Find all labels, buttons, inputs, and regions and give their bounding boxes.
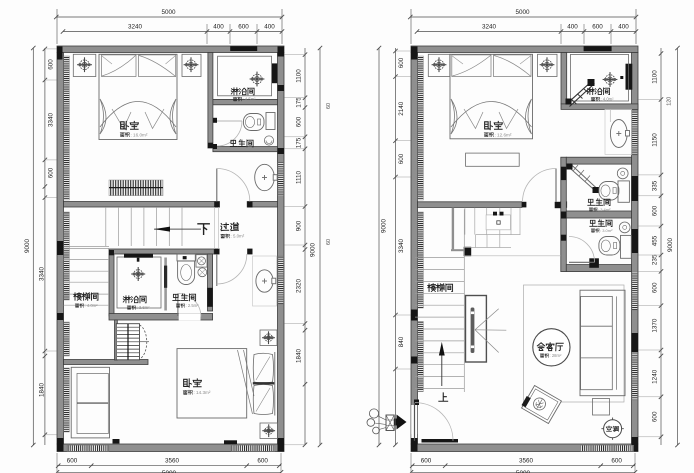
svg-text:175: 175 (296, 97, 303, 108)
svg-text:1110: 1110 (296, 170, 303, 184)
svg-text:235: 235 (652, 254, 659, 265)
svg-text:3340: 3340 (38, 267, 45, 282)
svg-text:600: 600 (652, 282, 659, 293)
svg-text:600: 600 (47, 59, 54, 70)
svg-text:175: 175 (296, 137, 303, 148)
svg-text:600: 600 (611, 458, 622, 465)
svg-text:600: 600 (238, 24, 249, 31)
svg-text:600: 600 (592, 24, 603, 31)
svg-text:5000: 5000 (515, 9, 530, 16)
svg-text:9000: 9000 (381, 219, 388, 234)
svg-text:9000: 9000 (24, 239, 31, 254)
svg-text:2140: 2140 (398, 101, 405, 116)
svg-text:1100: 1100 (652, 70, 659, 84)
svg-text:1370: 1370 (652, 318, 659, 333)
svg-text:: 3.4m²: : 3.4m² (598, 207, 611, 212)
svg-text:400: 400 (213, 24, 224, 31)
svg-text:455: 455 (652, 235, 659, 246)
svg-text:60: 60 (326, 103, 332, 109)
svg-text:600: 600 (296, 116, 303, 127)
svg-text:: 3.6m²: : 3.6m² (137, 305, 151, 310)
svg-text:9000: 9000 (667, 238, 674, 253)
svg-text:1100: 1100 (296, 69, 303, 83)
svg-text:5000: 5000 (161, 9, 176, 16)
svg-text:: 4.0m²: : 4.0m² (601, 97, 615, 102)
svg-text:1840: 1840 (296, 349, 303, 364)
svg-text:1240: 1240 (652, 369, 659, 384)
svg-text:9000: 9000 (310, 243, 317, 258)
svg-text:: 3.0m²: : 3.0m² (600, 228, 613, 233)
svg-text:840: 840 (398, 336, 405, 347)
svg-text:335: 335 (652, 180, 659, 191)
svg-text:: 12.6m²: : 12.6m² (495, 132, 512, 137)
svg-text:600: 600 (257, 458, 268, 465)
svg-text:600: 600 (67, 458, 78, 465)
svg-text:600: 600 (652, 411, 659, 422)
svg-text:: 28m²: : 28m² (550, 353, 562, 358)
svg-text:400: 400 (567, 24, 578, 31)
svg-text:: 2.5m²: : 2.5m² (186, 303, 200, 308)
svg-text:900: 900 (296, 220, 303, 231)
svg-text:3560: 3560 (519, 458, 534, 465)
svg-text:400: 400 (618, 24, 629, 31)
svg-text:400: 400 (264, 24, 275, 31)
svg-text:600: 600 (421, 458, 432, 465)
svg-text:1840: 1840 (38, 383, 45, 398)
svg-text:: 14.3m²: : 14.3m² (194, 390, 211, 395)
svg-text:3340: 3340 (398, 239, 405, 254)
svg-text:: 4.5m²: : 4.5m² (243, 97, 257, 102)
svg-text:600: 600 (652, 205, 659, 216)
svg-text:3560: 3560 (165, 458, 180, 465)
svg-text:: 16.0m²: : 16.0m² (131, 132, 148, 137)
svg-text:2320: 2320 (296, 279, 303, 294)
svg-text:600: 600 (398, 57, 405, 68)
svg-text:3240: 3240 (482, 24, 497, 31)
svg-text:1150: 1150 (652, 133, 659, 147)
svg-text:: 5.0m²: : 5.0m² (231, 234, 245, 239)
svg-text:3240: 3240 (128, 24, 143, 31)
svg-text:120: 120 (666, 97, 672, 106)
svg-text:60: 60 (326, 239, 332, 245)
svg-text:600: 600 (398, 153, 405, 164)
svg-text:600: 600 (47, 167, 54, 178)
svg-text:: 4.0m²: : 4.0m² (85, 303, 99, 308)
svg-text:3340: 3340 (47, 113, 54, 128)
